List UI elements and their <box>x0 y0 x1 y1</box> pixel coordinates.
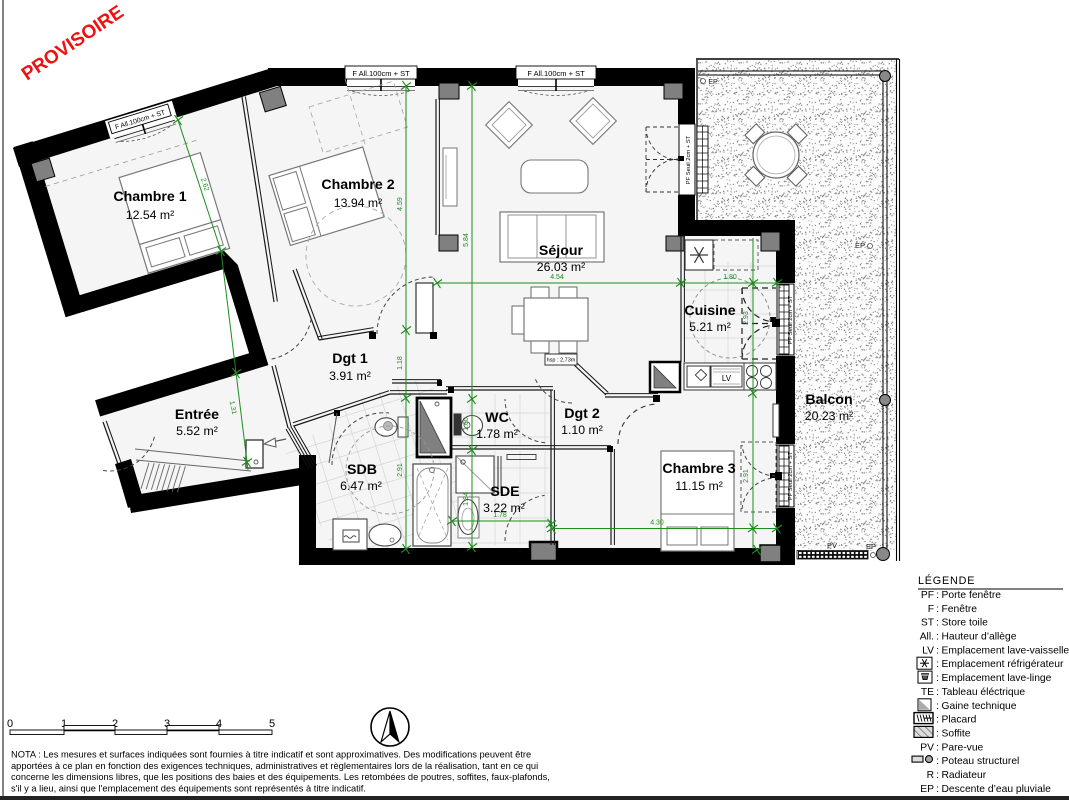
svg-text:Emplacement réfrigérateur: Emplacement réfrigérateur <box>942 659 1064 670</box>
svg-text:1.60: 1.60 <box>463 417 470 431</box>
svg-text:4.59: 4.59 <box>397 197 404 211</box>
svg-text:1.78 m²: 1.78 m² <box>476 427 518 441</box>
svg-text:EP: EP <box>866 542 876 551</box>
svg-text:Chambre 3: Chambre 3 <box>662 461 735 477</box>
svg-text:apportées à ce plan en fonctio: apportées à ce plan en fonction des exig… <box>11 761 538 771</box>
svg-text:2.93: 2.93 <box>743 311 750 325</box>
svg-text::: : <box>936 715 939 726</box>
svg-text::: : <box>936 756 939 767</box>
svg-text:5.84: 5.84 <box>463 233 470 247</box>
svg-text:Emplacement lave-vaisselle: Emplacement lave-vaisselle <box>942 645 1069 656</box>
svg-text:Balcon: Balcon <box>805 392 852 408</box>
svg-text:4.54: 4.54 <box>550 274 564 281</box>
svg-text:PV: PV <box>920 742 934 753</box>
svg-text:PV: PV <box>827 541 837 550</box>
svg-text:Gaine technique: Gaine technique <box>942 701 1017 712</box>
svg-text:WC: WC <box>485 410 509 426</box>
svg-text:5.52 m²: 5.52 m² <box>176 424 218 438</box>
svg-text::: : <box>936 645 939 656</box>
svg-text:3.22 m²: 3.22 m² <box>483 501 525 515</box>
svg-text::: : <box>936 659 939 670</box>
svg-text:LV: LV <box>922 645 934 656</box>
svg-text:EP: EP <box>855 241 865 250</box>
svg-text:R: R <box>927 770 934 781</box>
svg-text:Pare-vue: Pare-vue <box>942 742 984 753</box>
svg-text:s'il y a lieu, ainsi que l'emp: s'il y a lieu, ainsi que l'emplacement d… <box>11 783 366 793</box>
svg-text:EP: EP <box>708 79 718 86</box>
svg-text::: : <box>936 784 939 795</box>
svg-text:PF Seuil 2cm + ST: PF Seuil 2cm + ST <box>788 295 794 344</box>
svg-text::: : <box>936 604 939 615</box>
svg-text:5: 5 <box>269 718 275 730</box>
svg-text:SDE: SDE <box>490 484 519 500</box>
svg-text::: : <box>936 687 939 698</box>
svg-text:hsp : 2,73m: hsp : 2,73m <box>547 358 576 364</box>
svg-text:Radiateur: Radiateur <box>942 770 987 781</box>
svg-text:NOTA : Les mesures et surfaces: NOTA : Les mesures et surfaces indiquées… <box>11 750 531 760</box>
svg-text:1.10 m²: 1.10 m² <box>561 423 603 437</box>
svg-text:ST: ST <box>921 618 935 629</box>
svg-text:12.54 m²: 12.54 m² <box>126 208 175 222</box>
svg-text:5.21 m²: 5.21 m² <box>689 320 731 334</box>
svg-text::: : <box>936 673 939 684</box>
svg-text:1.80: 1.80 <box>723 274 737 281</box>
svg-text:All.: All. <box>920 632 934 643</box>
svg-text:26.03 m²: 26.03 m² <box>537 260 586 274</box>
svg-text:4.30: 4.30 <box>650 520 664 527</box>
svg-text:Soffite: Soffite <box>942 728 971 739</box>
svg-text::: : <box>936 701 939 712</box>
svg-text:11.15 m²: 11.15 m² <box>675 479 723 493</box>
svg-text::: : <box>936 770 939 781</box>
svg-text:LV: LV <box>722 374 732 383</box>
svg-text:20.23 m²: 20.23 m² <box>805 409 854 423</box>
svg-text:Dgt 2: Dgt 2 <box>564 406 600 422</box>
svg-text:PF Seuil 2cm + ST: PF Seuil 2cm + ST <box>788 451 794 500</box>
svg-text:PF Seuil 2cm + ST: PF Seuil 2cm + ST <box>686 135 692 184</box>
svg-text:13.94 m²: 13.94 m² <box>334 196 383 210</box>
svg-text::: : <box>936 590 939 601</box>
svg-text:Fenêtre: Fenêtre <box>942 604 978 615</box>
svg-text::: : <box>936 618 939 629</box>
svg-text:SDB: SDB <box>347 462 377 478</box>
svg-text:Séjour: Séjour <box>539 243 584 259</box>
svg-text:0: 0 <box>7 718 13 730</box>
svg-text:TE: TE <box>921 687 934 698</box>
svg-text:F: F <box>928 604 934 615</box>
svg-text:Hauteur d’allège: Hauteur d’allège <box>942 632 1017 643</box>
svg-text:Entrée: Entrée <box>175 407 219 423</box>
svg-text:Placard: Placard <box>942 715 977 726</box>
svg-text:2.91: 2.91 <box>743 469 750 483</box>
svg-text:PF: PF <box>921 590 934 601</box>
svg-text:EP: EP <box>920 784 934 795</box>
svg-text:3.91 m²: 3.91 m² <box>329 369 371 383</box>
svg-text:F All.100cm + ST: F All.100cm + ST <box>527 69 585 78</box>
svg-text:Store toile: Store toile <box>942 618 989 629</box>
svg-text:F All.100cm + ST: F All.100cm + ST <box>352 69 410 78</box>
svg-text:concerne les dimensions libres: concerne les dimensions libres, que les … <box>11 772 550 782</box>
svg-text:Tableau éléctrique: Tableau éléctrique <box>942 687 1026 698</box>
svg-text:1.84: 1.84 <box>463 492 470 506</box>
svg-text::: : <box>936 632 939 643</box>
svg-text:LÉGENDE: LÉGENDE <box>918 574 975 587</box>
svg-text:Emplacement lave-linge: Emplacement lave-linge <box>942 673 1052 684</box>
svg-text:2.91: 2.91 <box>397 463 404 477</box>
svg-text:6.47 m²: 6.47 m² <box>340 479 382 493</box>
svg-text:1.18: 1.18 <box>397 356 404 370</box>
svg-text::: : <box>936 742 939 753</box>
svg-text:Cuisine: Cuisine <box>684 303 735 319</box>
svg-text:Descente d’eau pluviale: Descente d’eau pluviale <box>942 784 1052 795</box>
svg-text:Chambre 2: Chambre 2 <box>321 177 394 193</box>
svg-text:Chambre 1: Chambre 1 <box>113 189 186 205</box>
svg-text:Poteau structurel: Poteau structurel <box>942 756 1020 767</box>
svg-text::: : <box>936 728 939 739</box>
svg-text:Dgt 1: Dgt 1 <box>332 351 368 367</box>
svg-text:Porte fenêtre: Porte fenêtre <box>942 590 1002 601</box>
